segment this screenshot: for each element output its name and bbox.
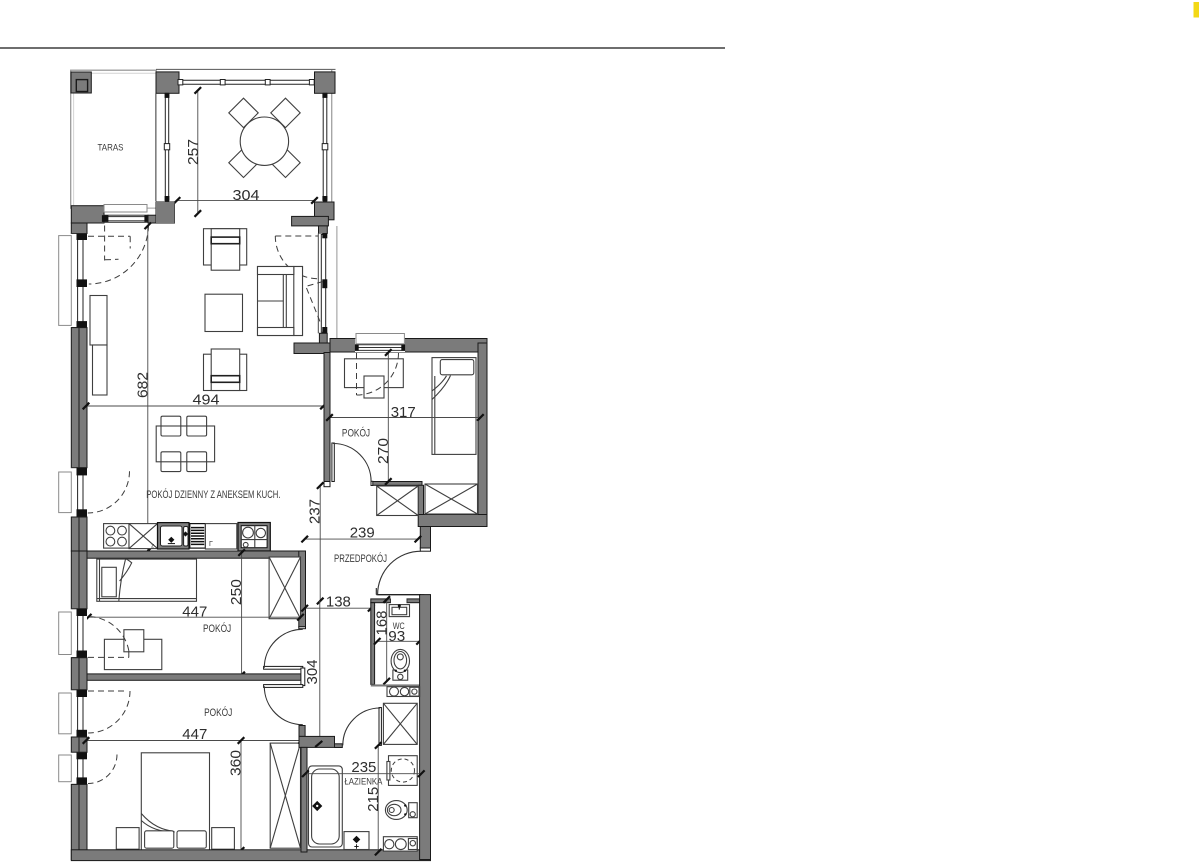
svg-text:447: 447: [182, 604, 207, 621]
svg-text:Γ: Γ: [209, 541, 213, 548]
svg-text:257: 257: [185, 139, 202, 165]
svg-text:494: 494: [193, 392, 220, 409]
svg-text:235: 235: [351, 759, 376, 776]
svg-text:POKÓJ: POKÓJ: [204, 706, 232, 719]
svg-text:215: 215: [365, 787, 382, 812]
svg-text:ŁAZIENKA: ŁAZIENKA: [344, 777, 382, 788]
svg-text:239: 239: [350, 525, 375, 542]
svg-text:682: 682: [134, 372, 151, 398]
svg-text:237: 237: [307, 499, 324, 524]
svg-text:PRZEDPOKÓJ: PRZEDPOKÓJ: [334, 552, 387, 565]
svg-text:TARAS: TARAS: [98, 143, 124, 154]
svg-text:z: z: [151, 543, 154, 550]
svg-text:93: 93: [388, 628, 405, 645]
svg-text:250: 250: [228, 579, 245, 605]
svg-text:447: 447: [182, 726, 207, 743]
svg-text:POKÓJ: POKÓJ: [203, 622, 231, 635]
svg-text:304: 304: [233, 187, 260, 204]
svg-text:POKÓJ: POKÓJ: [342, 426, 370, 439]
svg-text:317: 317: [391, 404, 416, 421]
svg-text:270: 270: [375, 438, 392, 464]
svg-text:POKÓJ DZIENNY Z ANEKSEM KUCH.: POKÓJ DZIENNY Z ANEKSEM KUCH.: [146, 488, 280, 501]
svg-text:304: 304: [304, 660, 321, 685]
svg-text:360: 360: [228, 750, 245, 776]
svg-text:138: 138: [326, 594, 351, 611]
svg-text:168: 168: [373, 611, 390, 636]
